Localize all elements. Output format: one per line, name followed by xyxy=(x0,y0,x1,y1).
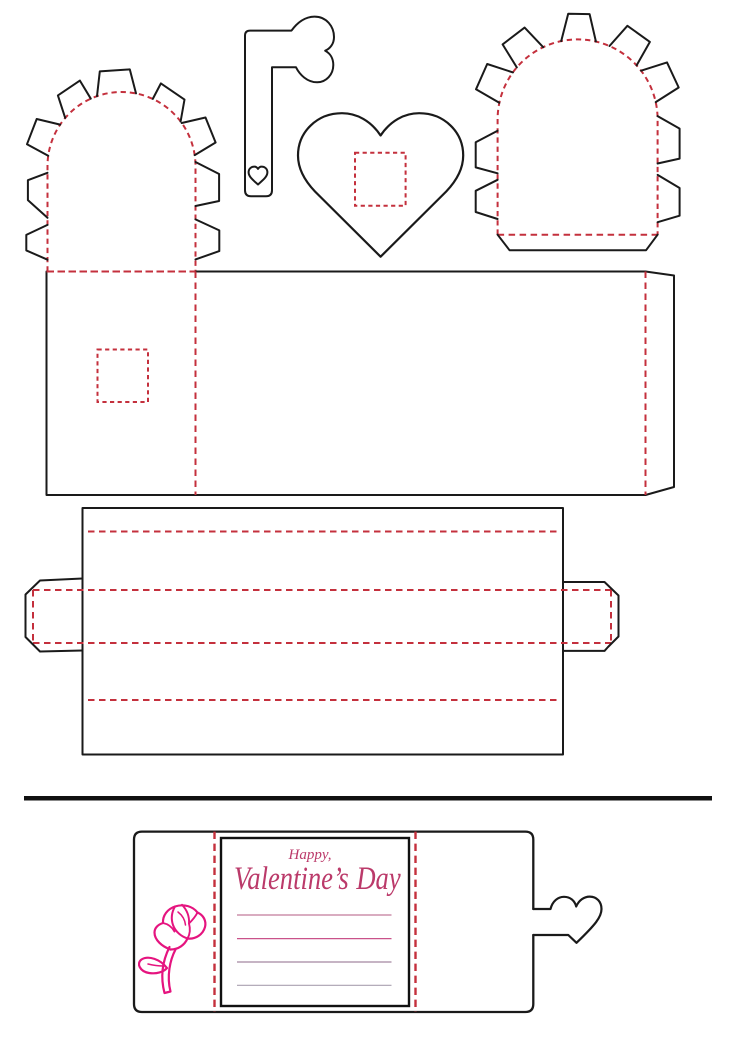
svg-text:Valentine’sDay: Valentine’sDay xyxy=(234,860,401,896)
